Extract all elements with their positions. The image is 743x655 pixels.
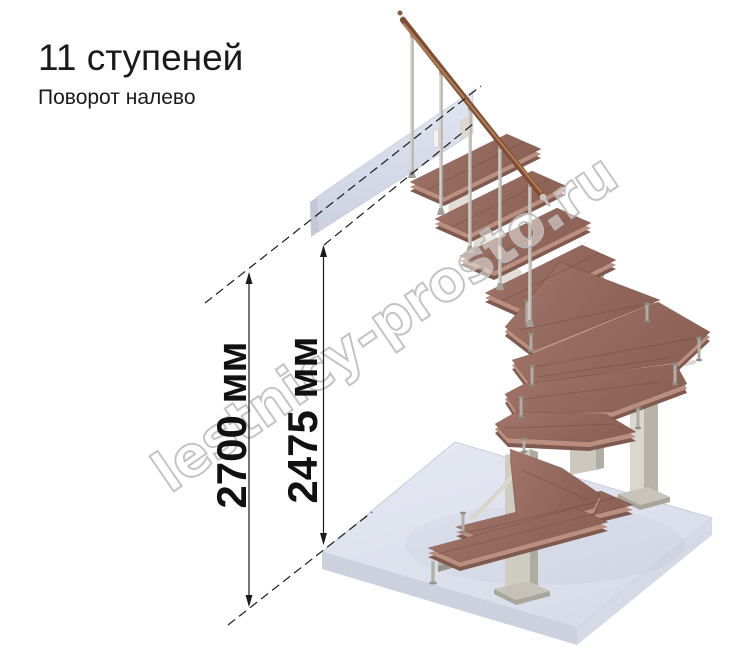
page-title: 11 ступеней [38, 37, 243, 78]
dimension-label-stair-height: 2475 мм [279, 336, 326, 503]
stair-render-canvas: lestnicy-prosto.ru 11 ступеней Поворот н… [0, 0, 743, 655]
dimension-label-overall-height: 2700 мм [208, 341, 255, 508]
stair-product-image: lestnicy-prosto.ru 11 ступеней Поворот н… [0, 0, 743, 655]
page-subtitle: Поворот налево [38, 86, 196, 109]
